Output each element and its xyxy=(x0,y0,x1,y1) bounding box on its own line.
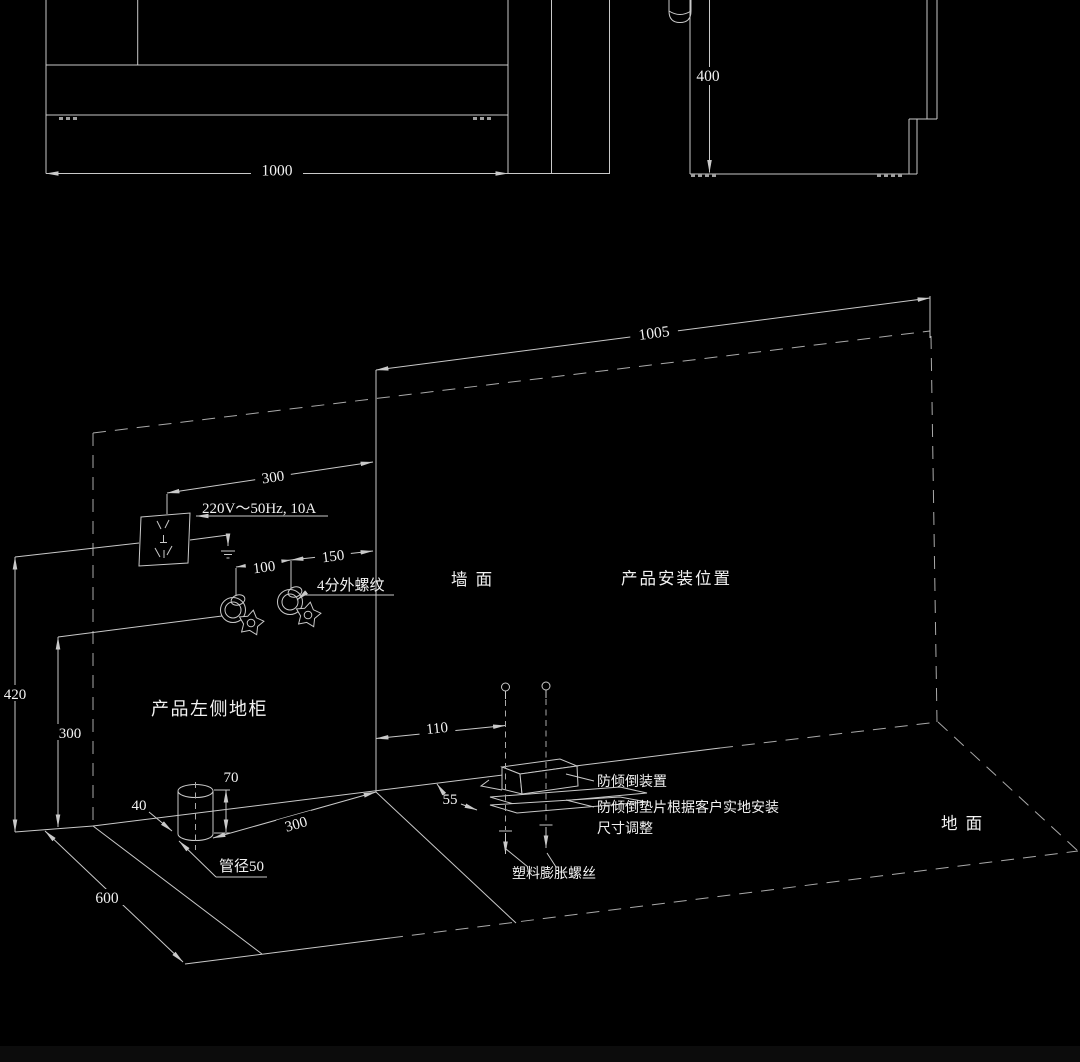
front-width-dimension: 1000 xyxy=(251,162,303,180)
front-view: 1000 xyxy=(46,0,610,180)
floor-outline: 600 地 面 xyxy=(45,722,1078,964)
dim-420: 420 xyxy=(4,687,27,703)
pipe-offset-dimension: 40 xyxy=(126,796,152,814)
pipe-diameter-label: 管径50 xyxy=(219,858,264,875)
dim-55: 55 xyxy=(443,792,458,808)
water-outlets: 100 150 4分外螺纹 xyxy=(221,545,395,635)
bracket-depth-dimension: 55 xyxy=(437,790,463,808)
handle-profile xyxy=(669,0,691,23)
install-position-label: 产品安装位置 xyxy=(621,569,732,588)
installation-diagram: 1000 400 xyxy=(0,0,1080,1062)
floor-label: 地 面 xyxy=(941,814,984,833)
plastic-anchor-label: 塑料膨胀螺丝 xyxy=(512,865,596,882)
gasket-note-line2: 尺寸调整 xyxy=(597,821,653,837)
dim-40: 40 xyxy=(132,798,147,814)
wall-label: 墙 面 xyxy=(451,570,494,589)
outlet-height-dimension: 300 xyxy=(52,724,88,742)
anti-tip-device-label: 防倾倒装置 xyxy=(597,774,667,790)
dim-400: 400 xyxy=(696,68,720,85)
dim-600: 600 xyxy=(95,890,119,907)
dim-150: 150 xyxy=(321,548,345,567)
outlet-edge-dimension: 150 xyxy=(314,545,352,567)
dim-300-offset: 300 xyxy=(261,469,286,488)
height-dimensions: 420 300 产品左侧地柜 xyxy=(0,543,268,832)
thread-spec-label: 4分外螺纹 xyxy=(317,577,385,594)
faucet-icon xyxy=(221,593,264,635)
drain-pipe: 70 40 管径50 300 xyxy=(126,768,376,877)
gasket-note-line1: 防倾倒垫片根据客户实地安装 xyxy=(597,799,779,816)
dim-70: 70 xyxy=(224,770,239,786)
side-height-dimension: 400 xyxy=(691,67,725,85)
wall-width-dimension: 1005 xyxy=(629,321,679,345)
left-cabinet-label: 产品左侧地柜 xyxy=(151,699,268,719)
bracket-offset-dimension: 110 xyxy=(418,717,456,739)
anti-tip-assembly: 110 55 防 xyxy=(376,682,779,882)
side-view: 400 xyxy=(669,0,937,176)
dim-110: 110 xyxy=(425,720,449,738)
window-bottom-edge xyxy=(0,1046,1080,1062)
floor-split-line xyxy=(376,792,516,923)
floor-depth-dimension: 600 xyxy=(83,889,131,907)
outlet-spacing-dimension: 100 xyxy=(245,556,283,578)
socket-height-dimension: 420 xyxy=(0,685,33,703)
cad-drawing-canvas: 1000 400 xyxy=(0,0,1080,1062)
dim-100: 100 xyxy=(252,559,276,578)
socket-offset-dimension: 300 xyxy=(254,466,292,489)
dim-1005: 1005 xyxy=(638,323,671,344)
power-spec-label: 220V～50Hz, 10A xyxy=(202,501,316,517)
wall-outline: 1005 墙 面 产品安装位置 xyxy=(93,296,938,826)
dim-300-height: 300 xyxy=(59,726,82,742)
pipe-height-dimension: 70 xyxy=(218,768,244,786)
dim-1000: 1000 xyxy=(262,163,293,180)
